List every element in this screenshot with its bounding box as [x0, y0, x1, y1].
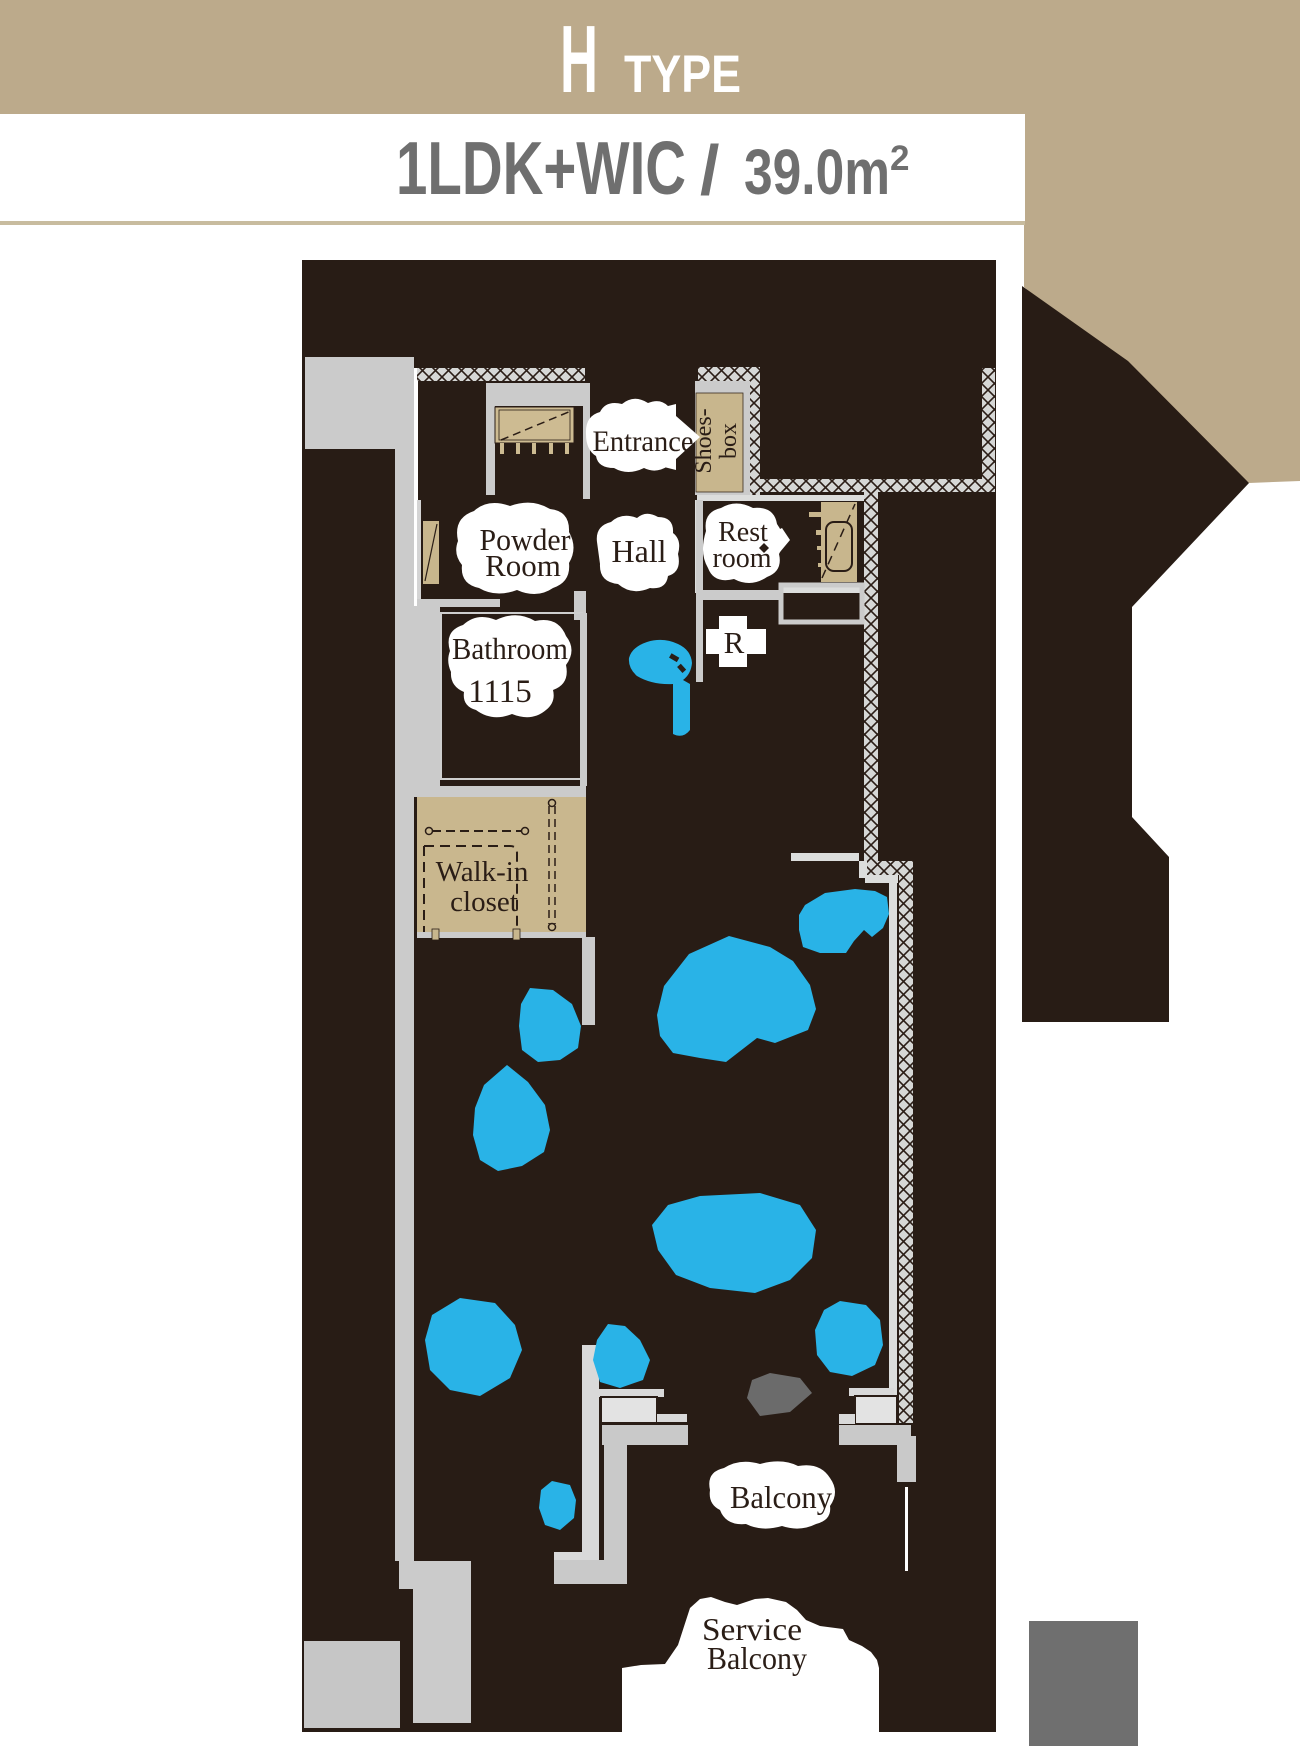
svg-text:Room: Room: [485, 548, 561, 583]
svg-text:Hall: Hall: [611, 533, 666, 569]
svg-text:39.0m: 39.0m: [744, 136, 890, 208]
svg-text:TYPE: TYPE: [624, 45, 741, 104]
svg-text:1115: 1115: [468, 674, 532, 710]
svg-text:closet: closet: [450, 886, 518, 918]
svg-text:R: R: [724, 625, 745, 660]
svg-text:Walk-in: Walk-in: [436, 856, 529, 888]
svg-text:Entrance: Entrance: [593, 425, 694, 458]
svg-text:2: 2: [890, 139, 909, 178]
svg-text:Balcony: Balcony: [730, 1479, 832, 1515]
svg-text:/: /: [700, 131, 719, 209]
svg-text:Bathroom: Bathroom: [452, 631, 568, 666]
svg-text:1LDK+WIC: 1LDK+WIC: [396, 126, 686, 210]
svg-text:Balcony: Balcony: [707, 1640, 807, 1676]
svg-text:box: box: [716, 423, 742, 459]
svg-text:room: room: [712, 543, 771, 574]
svg-text:H: H: [560, 6, 598, 113]
